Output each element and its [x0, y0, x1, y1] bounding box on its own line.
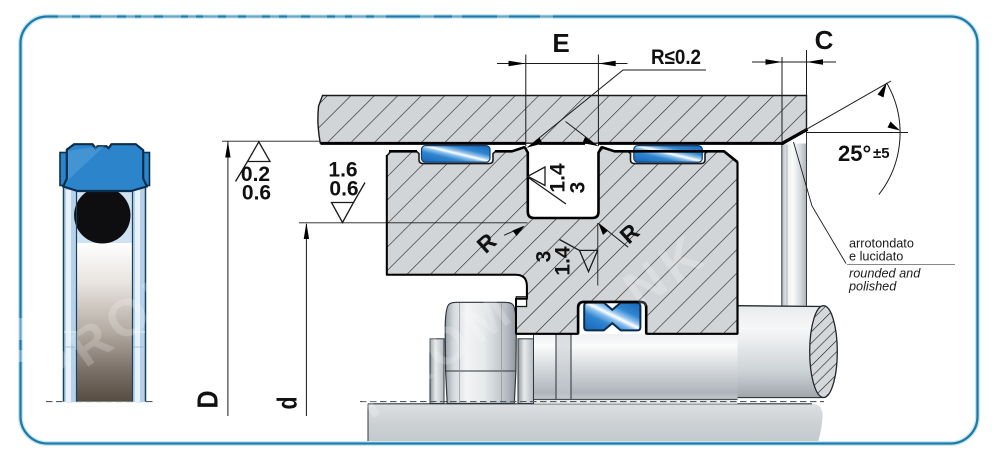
svg-text:±5: ±5: [873, 145, 890, 162]
svg-text:C: C: [815, 25, 834, 55]
svg-text:25°: 25°: [838, 141, 871, 166]
svg-text:1.4: 1.4: [552, 246, 575, 276]
svg-text:0.6: 0.6: [242, 182, 271, 205]
svg-text:R≤0.2: R≤0.2: [651, 46, 701, 69]
svg-text:e lucidato: e lucidato: [849, 250, 903, 264]
svg-text:0.6: 0.6: [329, 178, 358, 201]
svg-text:E: E: [552, 28, 569, 58]
svg-text:d: d: [272, 397, 303, 410]
svg-text:rounded and: rounded and: [849, 267, 921, 281]
svg-text:3: 3: [567, 182, 590, 194]
svg-text:arrotondato: arrotondato: [849, 237, 914, 251]
svg-text:polished: polished: [848, 280, 897, 294]
svg-text:D: D: [193, 391, 225, 409]
